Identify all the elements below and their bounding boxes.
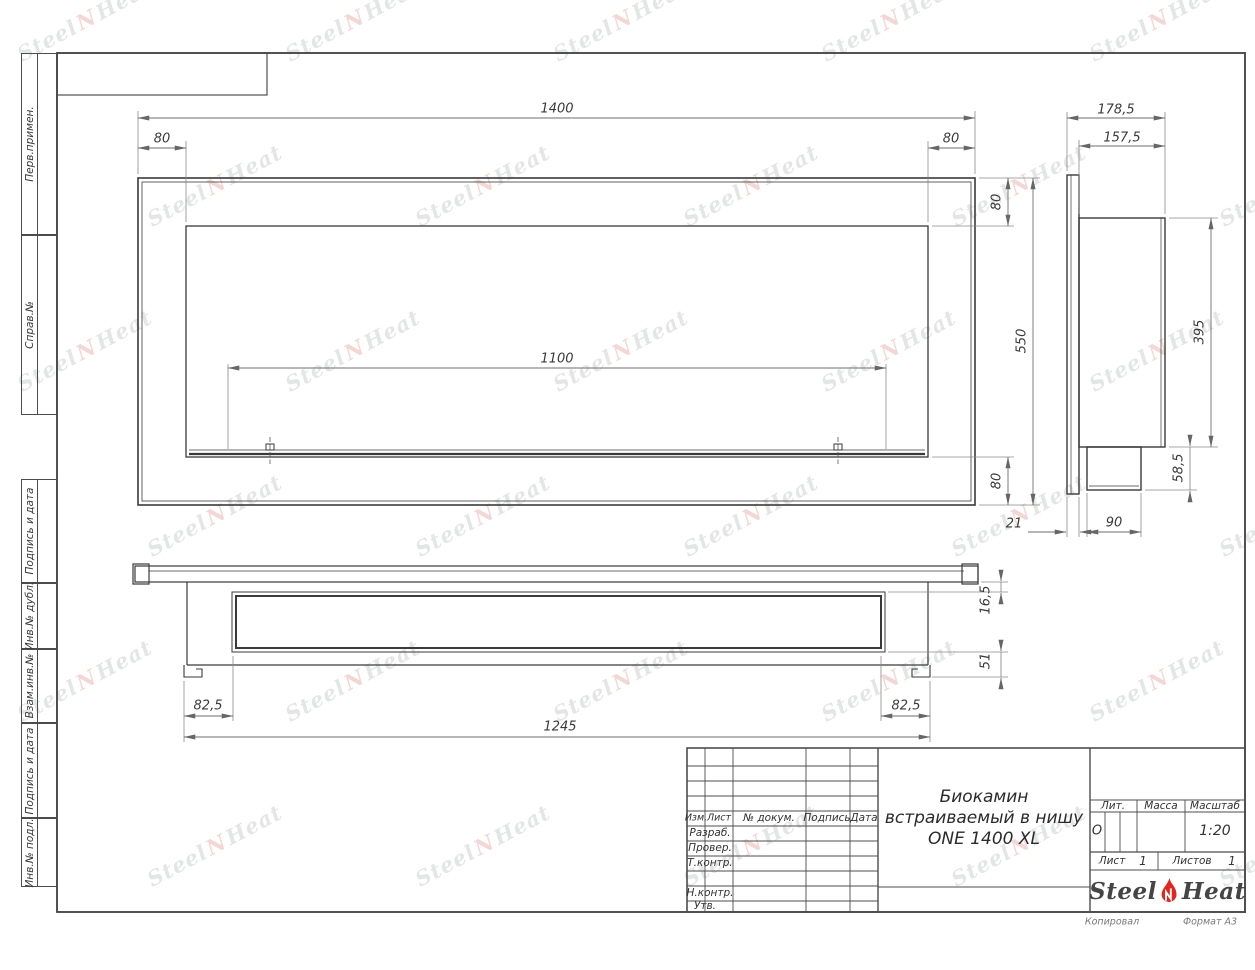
margin-cell-divider (37, 724, 38, 817)
drawing-sheet: SteelNHeatSteelNHeatSteelNHeatSteelNHeat… (0, 0, 1255, 970)
tb-col-data: Дата (850, 812, 877, 824)
tb-row-nkontr: Н.контр. (687, 887, 734, 899)
margin-cell-vzam-inv: Взам.инв.№ (21, 649, 57, 723)
tb-lit-value: О (1092, 824, 1102, 839)
margin-cell-divider (37, 236, 38, 414)
margin-cell-divider (37, 650, 38, 722)
margin-label: Инв.№ дубл. (24, 582, 36, 651)
margin-cell-perv-primen: Перв.примен. (21, 53, 57, 235)
dim-opening-width: 1100 (540, 352, 573, 367)
side-view-outline (1067, 175, 1165, 494)
tb-col-list: Лист (707, 813, 731, 824)
margin-label: Перв.примен. (24, 106, 36, 181)
footer-format: Формат А3 (1183, 917, 1237, 928)
dim-base-left-offset: 82,5 (194, 699, 223, 714)
dimension-lines (138, 118, 1211, 737)
margin-cell-divider (37, 819, 38, 886)
burner-centerlines (270, 437, 838, 464)
tb-row-prover: Провер. (688, 842, 732, 854)
dim-side-height: 51 (979, 653, 994, 670)
drawing-title: Биокамин встраиваемый в нишу ONE 1400 XL (878, 748, 1090, 887)
dim-right-offset: 80 (943, 132, 960, 147)
dim-total-width: 1400 (540, 102, 573, 117)
margin-label: Подпись и дата (24, 727, 36, 814)
tb-sheets-value: 1 (1228, 854, 1236, 868)
tb-mass-label: Масса (1144, 800, 1177, 812)
tb-lit-label: Лит. (1101, 800, 1125, 812)
margin-cell-divider (37, 54, 38, 234)
logo-word-heat: Heat (1182, 878, 1246, 905)
dim-top-inset: 16,5 (979, 586, 994, 615)
tb-row-razrab: Разраб. (689, 827, 730, 839)
dim-left-offset: 80 (154, 132, 171, 147)
tb-sheet-value: 1 (1139, 854, 1147, 868)
dim-base-length: 1245 (543, 720, 576, 735)
dim-height: 550 (1015, 329, 1030, 354)
margin-label: Подпись и дата (24, 488, 36, 575)
bottom-view-outline (133, 564, 978, 677)
margin-label: Справ.№ (24, 301, 36, 349)
dim-bottom-offset: 80 (990, 473, 1005, 490)
logo-word-steel: Steel (1089, 878, 1157, 905)
margin-cell-inv-podl: Инв.№ подл. (21, 818, 57, 887)
dim-burner-height: 58,5 (1172, 454, 1187, 483)
dim-total-depth: 178,5 (1097, 103, 1134, 118)
title-line-2: встраиваемый в нишу (885, 808, 1083, 828)
dim-body-height: 395 (1193, 320, 1208, 345)
tb-scale-value: 1:20 (1199, 823, 1230, 839)
front-view-outline (138, 178, 975, 505)
margin-cell-sprav-no: Справ.№ (21, 235, 57, 415)
tb-sheet-label: Лист (1099, 855, 1126, 867)
footer-kopiroval: Копировал (1085, 917, 1139, 928)
tb-sheets-label: Листов (1172, 855, 1211, 867)
margin-cell-divider (37, 584, 38, 648)
tb-row-utv: Утв. (694, 900, 716, 912)
dim-body-depth: 157,5 (1103, 131, 1140, 146)
title-line-3: ONE 1400 XL (928, 829, 1040, 849)
margin-cell-podpis-data-1: Подпись и дата (21, 479, 57, 583)
tb-col-izm: Изм. (685, 813, 707, 824)
margin-label: Инв.№ подл. (24, 818, 36, 887)
tb-scale-label: Масштаб (1190, 800, 1240, 812)
margin-label: Взам.инв.№ (24, 654, 36, 719)
dim-flange-depth: 21 (1006, 517, 1023, 532)
title-line-1: Биокамин (940, 787, 1029, 807)
tb-row-tkontr: Т.контр. (687, 857, 733, 869)
margin-cell-divider (37, 480, 38, 582)
tb-col-ndokum: № докум. (743, 812, 795, 824)
dim-burner-depth: 90 (1106, 516, 1123, 531)
dim-top-offset: 80 (990, 194, 1005, 211)
margin-cell-podpis-data-2: Подпись и дата (21, 723, 57, 818)
flame-icon (1159, 877, 1180, 905)
dim-base-right-offset: 82,5 (892, 699, 921, 714)
company-logo: Steel Heat (1090, 870, 1245, 912)
tb-col-podpis: Подпись (803, 812, 850, 824)
margin-cell-inv-dubl: Инв.№ дубл. (21, 583, 57, 649)
